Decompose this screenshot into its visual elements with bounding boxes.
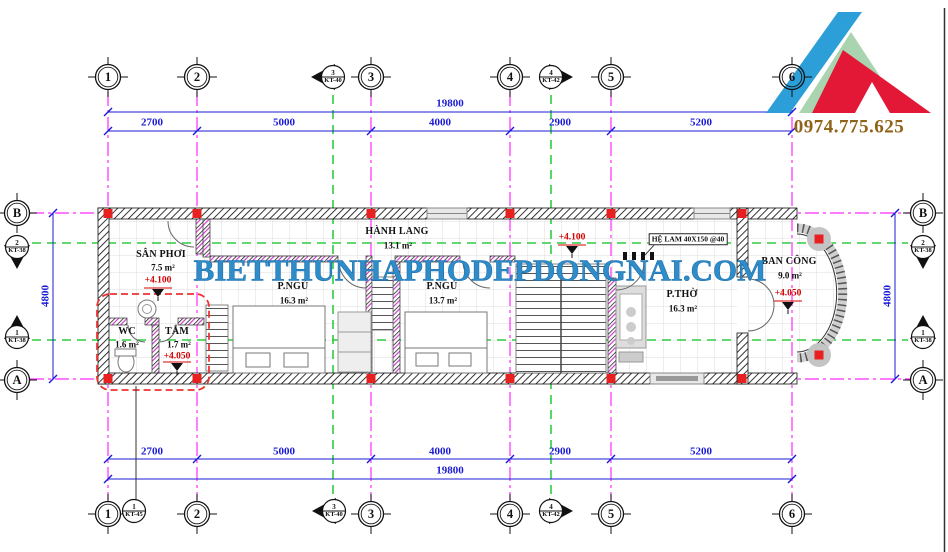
room-area-san-phoi: 7.5 m² — [151, 264, 175, 273]
section-marker-kt38-right-top: 2 KT-38 — [914, 239, 931, 255]
level-balcony: +4.050 — [775, 289, 802, 299]
grid-bubble-1: 1 — [105, 71, 111, 84]
level-tam: +4.050 — [164, 352, 191, 362]
grid-bubble-B: B — [13, 207, 21, 220]
room-label-balcony: BAN CÔNG — [761, 257, 816, 267]
room-area-tho: 16.3 m² — [669, 305, 697, 314]
grid-bubble-4: 4 — [507, 71, 513, 84]
grid-bubble-4b: 4 — [507, 508, 513, 521]
grid-bubble-Br: B — [919, 207, 927, 220]
room-area-tam: 1.7 m² — [167, 341, 191, 350]
grid-bubble-5b: 5 — [608, 508, 614, 521]
room-area-balcony: 9.0 m² — [778, 272, 802, 281]
grid-bubble-Ar: A — [918, 374, 927, 387]
dim-total-right: 4800 — [883, 285, 894, 307]
dim-total-left: 4800 — [41, 285, 52, 307]
section-marker-kt38-left-bottom: 1 KT-38 — [8, 329, 25, 345]
section-marker-kt40-top: 3 KT-40 — [324, 69, 341, 85]
dim-seg: 5000 — [273, 118, 295, 129]
section-marker-kt40-bottom: 3 KT-40 — [325, 503, 342, 519]
section-marker-kt45: 1 KT-45 — [125, 503, 142, 519]
grid-bubble-5: 5 — [608, 71, 614, 84]
grid-bubble-A: A — [12, 374, 21, 387]
room-area-bed2: 13.7 m² — [429, 297, 457, 306]
dim-seg: 5000 — [273, 447, 295, 458]
room-label-tho: P.THỜ — [667, 290, 698, 300]
grid-bubble-3b: 3 — [368, 508, 374, 521]
section-marker-kt38-right-bottom: 1 KT-38 — [914, 329, 931, 345]
level-stair: +4.100 — [559, 233, 586, 243]
floor-plan-sheet: 19800 2700 5000 4000 2900 5200 2700 5000… — [0, 0, 948, 552]
dim-seg: 2700 — [141, 118, 163, 129]
room-label-wc: WC — [118, 327, 136, 337]
company-logo — [766, 12, 931, 113]
grid-bubble-2: 2 — [194, 71, 200, 84]
dim-total-bottom: 19800 — [436, 466, 464, 477]
dim-seg: 4000 — [429, 447, 451, 458]
dim-total-top: 19800 — [436, 99, 464, 110]
room-label-san-phoi: SÂN PHƠI — [136, 250, 186, 260]
lam-annotation: HỆ LAM 40X150 @40 — [649, 233, 728, 245]
level-san-phoi: +4.100 — [145, 276, 172, 286]
dim-seg: 2900 — [549, 118, 571, 129]
grid-bubble-6: 6 — [789, 71, 795, 84]
phone-number: 0974.775.625 — [794, 118, 905, 137]
watermark-text: BIETTHUNHAPHODEPDONGNAI.COM — [194, 255, 767, 286]
section-marker-kt38-left-top: 2 KT-38 — [8, 239, 25, 255]
dim-seg: 2700 — [141, 447, 163, 458]
room-area-bed1: 16.3 m² — [280, 297, 308, 306]
dim-seg: 5200 — [690, 447, 712, 458]
grid-bubble-2b: 2 — [194, 508, 200, 521]
room-area-hanh-lang: 13.1 m² — [384, 242, 412, 251]
grid-bubble-6b: 6 — [789, 508, 795, 521]
room-label-tam: TẮM — [165, 327, 189, 337]
grid-bubble-1b: 1 — [105, 508, 111, 521]
room-area-wc: 1.6 m² — [115, 341, 139, 350]
section-marker-kt42-bottom: 4 KT-42 — [542, 503, 559, 519]
dim-seg: 2900 — [549, 447, 571, 458]
grid-bubble-3: 3 — [368, 71, 374, 84]
dim-seg: 5200 — [690, 118, 712, 129]
room-label-hanh-lang: HÀNH LANG — [365, 227, 428, 237]
section-marker-kt42-top: 4 KT-42 — [542, 69, 559, 85]
dim-seg: 4000 — [429, 118, 451, 129]
